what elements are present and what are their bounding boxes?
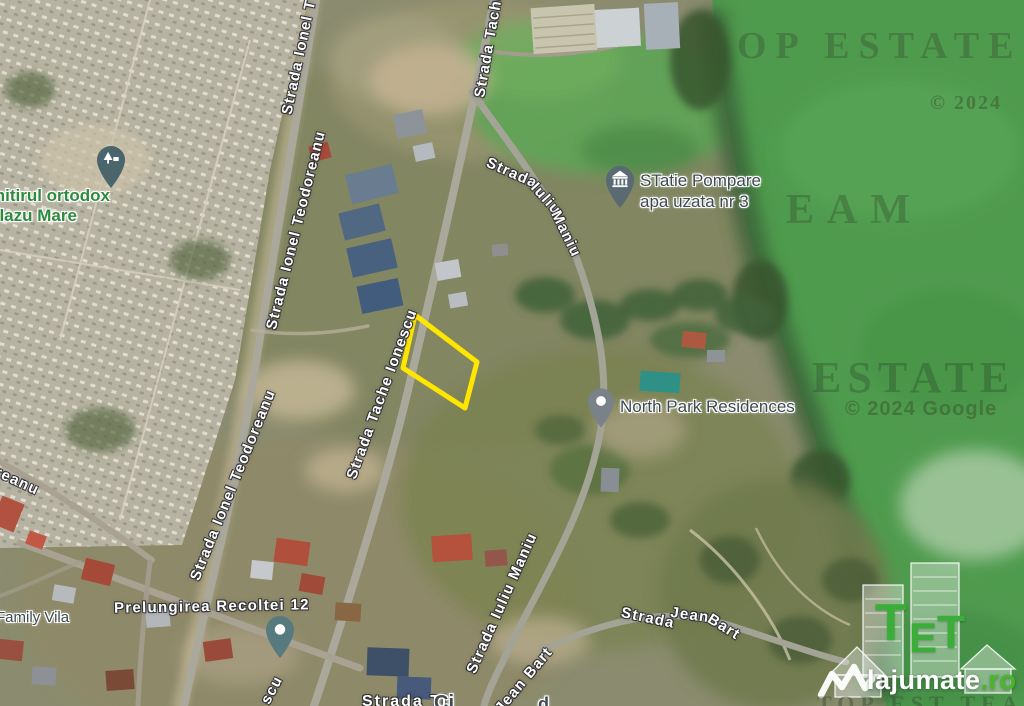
recoltei-pin[interactable] — [266, 616, 294, 663]
watermark-top-estate: OP ESTATE TE — [737, 24, 1024, 68]
brand-name: lajumate — [867, 665, 981, 695]
poi-label-pompare-line1: STatie Pompare — [640, 170, 761, 191]
lajumate-logo: T E T TOP EST TEAM lajumate.ro — [815, 555, 1024, 706]
watermark-google-copyright: © 2024 Google — [845, 398, 997, 421]
brand-wordmark: lajumate.ro — [867, 665, 1017, 696]
poi-label-pompare[interactable]: STatie Pompare apa uzata nr 3 — [640, 170, 761, 213]
poi-label-cemetery-line2: alazu Mare — [0, 206, 110, 226]
cemetery-pin[interactable] — [95, 146, 127, 193]
poi-label-cemetery-line1: mitirul ortodox — [0, 186, 110, 206]
logo-letter-t1: T — [875, 597, 907, 649]
poi-label-family-vila[interactable]: Family Vila — [0, 609, 69, 628]
poi-label-ci-fragment: Ci — [434, 691, 454, 706]
dot-icon — [275, 624, 286, 635]
street-label-recoltei: Prelungirea Recoltei 12 — [114, 597, 310, 615]
dot-icon — [596, 396, 606, 406]
north-park-pin[interactable] — [588, 388, 614, 433]
logo-letter-e: E — [909, 617, 937, 659]
poi-label-d-fragment: d — [538, 693, 549, 706]
poi-label-cemetery[interactable]: mitirul ortodox alazu Mare — [0, 186, 110, 225]
pumping-station-pin[interactable] — [606, 166, 634, 213]
logo-letter-t2: T — [937, 609, 965, 655]
satellite-map-view[interactable]: OP ESTATE TE © 2024 EAM ESTATE TE © 2024… — [0, 0, 1024, 706]
poi-label-pompare-line2: apa uzata nr 3 — [640, 191, 761, 212]
watermark-copyright-top: © 2024 — [930, 92, 1002, 115]
watermark-team-fragment: EAM — [786, 186, 923, 234]
watermark-estate-mid: ESTATE TE — [812, 352, 1024, 403]
brand-tld: .ro — [981, 665, 1017, 695]
poi-label-north-park[interactable]: North Park Residences — [620, 396, 795, 417]
